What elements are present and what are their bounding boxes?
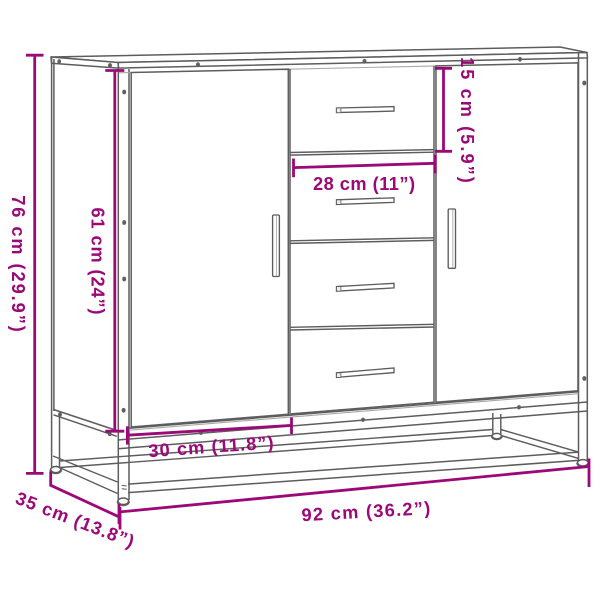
svg-text:28 cm (11”): 28 cm (11”) [313,174,416,194]
svg-text:61 cm (24”): 61 cm (24”) [88,208,108,316]
svg-text:76 cm (29.9”): 76 cm (29.9”) [8,195,28,334]
svg-text:15 cm (5.9”): 15 cm (5.9”) [457,57,477,185]
